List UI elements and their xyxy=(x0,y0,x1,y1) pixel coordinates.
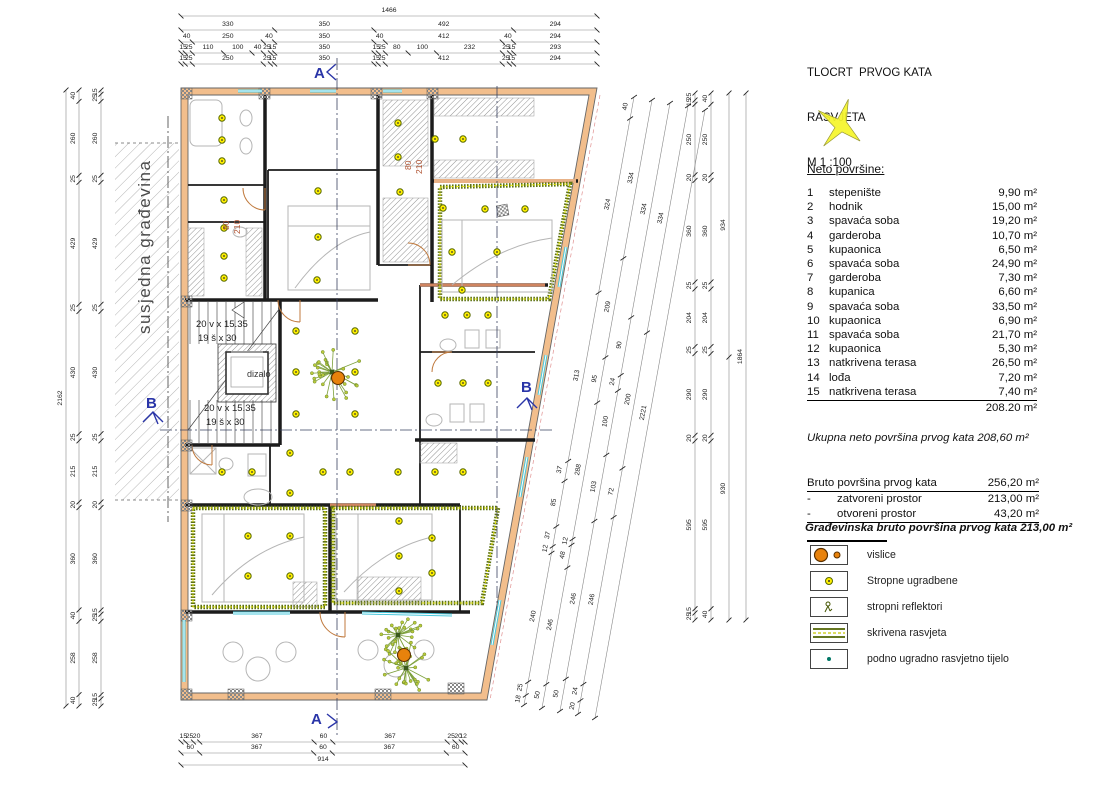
dim-label: 200 xyxy=(624,393,633,406)
dim-label: 20 xyxy=(92,501,99,509)
ceiling-recessed-icon xyxy=(810,571,848,591)
dim-label: 2162 xyxy=(57,390,64,405)
dim-label: 430 xyxy=(70,367,77,379)
dim-label: 25 xyxy=(70,175,77,183)
dim-label: 350 xyxy=(319,44,331,51)
area-row-name: garderoba xyxy=(829,271,965,285)
dim-label: 260 xyxy=(70,132,77,144)
area-row-name: spavaća soba xyxy=(829,328,965,342)
area-row-name: natkrivena terasa xyxy=(829,356,965,370)
dim-label: 25 xyxy=(686,612,693,620)
dim-label: 258 xyxy=(92,652,99,664)
area-row: 3spavaća soba19,20 m² xyxy=(807,214,1037,228)
dim-label: 360 xyxy=(702,225,709,237)
dim-label: 294 xyxy=(550,33,562,40)
dim-label: 40 xyxy=(622,102,630,111)
area-row-number: 5 xyxy=(807,243,829,257)
dim-label: 250 xyxy=(222,55,234,62)
net-areas-table: 1stepenište9,90 m²2hodnik15,00 m²3spavać… xyxy=(807,186,1037,399)
plan-label-marker: B xyxy=(146,395,157,412)
dim-label: 110 xyxy=(203,44,214,51)
dim-label: 20 xyxy=(686,434,693,442)
dim-label: 367 xyxy=(251,733,263,740)
legend-item-label: podno ugradno rasvjetno tijelo xyxy=(867,653,1009,665)
dim-label: 367 xyxy=(251,744,263,751)
area-row: 14lođa7,20 m² xyxy=(807,371,1037,385)
area-row: 4garderoba10,70 m² xyxy=(807,229,1037,243)
area-row-number: 8 xyxy=(807,285,829,299)
net-areas-heading: Neto površine: xyxy=(807,162,884,176)
dim-label: 12 xyxy=(562,536,570,545)
dim-label: 25 xyxy=(70,304,77,312)
area-row-value: 7,40 m² xyxy=(965,385,1037,399)
dim-label: 330 xyxy=(222,21,234,28)
dim-label: 595 xyxy=(686,519,693,531)
area-row-name: kupaonica xyxy=(829,342,965,356)
dim-label: 85 xyxy=(550,498,558,507)
plan-label-small: dizalo xyxy=(247,369,271,379)
dim-label: 25 xyxy=(702,346,709,354)
dim-label: 250 xyxy=(686,134,693,146)
dash: - xyxy=(807,507,837,522)
pendant-light xyxy=(332,372,345,385)
area-row-number: 13 xyxy=(807,356,829,370)
area-row-name: lođa xyxy=(829,371,965,385)
drawing-title: TLOCRT PRVOG KATA xyxy=(807,66,932,81)
area-row-value: 6,50 m² xyxy=(965,243,1037,257)
dim-label: 25 xyxy=(378,44,386,51)
area-row-value: 21,70 m² xyxy=(965,328,1037,342)
dim-label: 215 xyxy=(70,465,77,477)
dim-label: 1864 xyxy=(737,349,744,364)
gross-area-row-label: otvoreni prostor xyxy=(837,507,967,522)
dim-label: 914 xyxy=(317,756,329,763)
dim-label: 50 xyxy=(534,690,542,699)
dim-label: 25 xyxy=(92,614,99,622)
dim-label: 412 xyxy=(438,33,450,40)
dim-label: 25 xyxy=(702,281,709,289)
dim-label: 72 xyxy=(608,487,616,496)
dim-label: 40 xyxy=(70,696,77,704)
area-row-value: 6,90 m² xyxy=(965,314,1037,328)
dim-label: 25 xyxy=(92,433,99,441)
area-row-number: 11 xyxy=(807,328,829,342)
area-row-number: 7 xyxy=(807,271,829,285)
dim-label: 2221 xyxy=(639,405,649,421)
plan-label-door: 210 xyxy=(414,160,424,174)
dim-label: 18 xyxy=(514,694,522,703)
dim-label: 95 xyxy=(591,374,599,383)
legend-item-label: skrivena rasvjeta xyxy=(867,627,946,639)
dim-label: 334 xyxy=(640,203,649,216)
dim-label: 100 xyxy=(232,44,244,51)
pendant-icon xyxy=(810,545,848,565)
area-row: 5kupaonica6,50 m² xyxy=(807,243,1037,257)
area-row-value: 19,20 m² xyxy=(965,214,1037,228)
area-row: 2hodnik15,00 m² xyxy=(807,200,1037,214)
area-row-number: 2 xyxy=(807,200,829,214)
dim-label: 204 xyxy=(702,312,709,324)
area-row: 7garderoba7,30 m² xyxy=(807,271,1037,285)
dim-label: 25 xyxy=(378,55,386,62)
dim-label: 930 xyxy=(720,483,727,495)
dim-label: 90 xyxy=(615,341,623,350)
dim-label: 429 xyxy=(92,237,99,249)
dim-label: 50 xyxy=(552,689,560,698)
dim-label: 1466 xyxy=(381,7,396,14)
cove-lighting-icon xyxy=(810,623,848,643)
area-row-name: spavaća soba xyxy=(829,257,965,271)
area-row-name: kupaonica xyxy=(829,314,965,328)
dim-label: 24 xyxy=(609,377,617,386)
dim-label: 60 xyxy=(452,744,460,751)
dim-label: 40 xyxy=(702,610,709,618)
dim-label: 40 xyxy=(70,612,77,620)
plan-label-marker: A xyxy=(311,711,322,728)
dim-label: 250 xyxy=(702,134,709,146)
area-row-name: spavaća soba xyxy=(829,214,965,228)
dim-label: 20 xyxy=(702,434,709,442)
gross-area-row: -otvoreni prostor43,20 m² xyxy=(807,507,1039,523)
dim-label: 25 xyxy=(92,175,99,183)
area-row-name: kupaonica xyxy=(829,243,965,257)
area-row-value: 15,00 m² xyxy=(965,200,1037,214)
dim-label: 258 xyxy=(70,652,77,664)
dim-label: 25 xyxy=(92,304,99,312)
area-row-name: garderoba xyxy=(829,229,965,243)
dim-label: 246 xyxy=(588,593,597,606)
dim-label: 367 xyxy=(384,744,396,751)
dim-label: 25 xyxy=(185,44,193,51)
dim-label: 103 xyxy=(590,480,599,493)
plan-label-stair: 19 š x 30 xyxy=(198,333,237,344)
area-row-value: 5,30 m² xyxy=(965,342,1037,356)
north-star-icon xyxy=(809,94,871,156)
dim-label: 350 xyxy=(319,33,331,40)
dim-label: 25 xyxy=(516,683,524,692)
dim-label: 324 xyxy=(604,198,613,211)
plan-label-marker: A xyxy=(314,65,325,82)
gross-area-row-value: 43,20 m² xyxy=(967,507,1039,522)
area-row-number: 6 xyxy=(807,257,829,271)
area-row: 11spavaća soba21,70 m² xyxy=(807,328,1037,342)
dim-label: 60 xyxy=(319,744,327,751)
dim-label: 12 xyxy=(542,544,550,553)
dim-label: 934 xyxy=(720,219,727,231)
dim-label: 20 xyxy=(702,174,709,182)
pendant-light xyxy=(398,649,411,662)
plan-label-neighbor: susjedna građevina xyxy=(135,160,154,334)
legend-item-label: stropni reflektori xyxy=(867,601,942,613)
floor-plan-sheet: 1466330350492294402504035040412402941525… xyxy=(0,0,1102,790)
gross-area-header: Bruto površina prvog kata 256,20 m² xyxy=(807,476,1039,492)
dim-label: 250 xyxy=(222,33,234,40)
dim-label: 15 xyxy=(508,55,516,62)
dim-label: 25 xyxy=(70,433,77,441)
area-row-number: 4 xyxy=(807,229,829,243)
dim-label: 40 xyxy=(265,33,273,40)
legend-item: podno ugradno rasvjetno tijelo xyxy=(810,646,1090,672)
area-row-name: natkrivena terasa xyxy=(829,385,965,399)
area-row-value: 33,50 m² xyxy=(965,300,1037,314)
plan-label-stair: 20 v x 15.35 xyxy=(196,319,248,330)
dim-label: 25 xyxy=(185,55,193,62)
area-row-number: 10 xyxy=(807,314,829,328)
dim-label: 288 xyxy=(574,463,583,476)
dim-label: 215 xyxy=(92,465,99,477)
dim-label: 40 xyxy=(376,33,384,40)
area-row-number: 9 xyxy=(807,300,829,314)
gross-area-row-value: 213,00 m² xyxy=(967,492,1039,507)
dim-label: 25 xyxy=(686,346,693,354)
plan-label-marker: B xyxy=(521,379,532,396)
area-row: 9spavaća soba33,50 m² xyxy=(807,300,1037,314)
dim-label: 313 xyxy=(573,369,582,382)
dim-label: 209 xyxy=(604,300,613,313)
area-row-number: 15 xyxy=(807,385,829,399)
dim-label: 204 xyxy=(686,312,693,324)
lighting-legend: visliceStropne ugradbenestropni reflekto… xyxy=(810,542,1090,672)
area-row-name: kupanica xyxy=(829,285,965,299)
area-row-number: 3 xyxy=(807,214,829,228)
gross-area-header-value: 256,20 m² xyxy=(967,476,1039,491)
dim-label: 60 xyxy=(187,744,195,751)
gross-area-row: -zatvoreni prostor213,00 m² xyxy=(807,492,1039,507)
dim-label: 430 xyxy=(92,367,99,379)
dim-label: 360 xyxy=(92,553,99,565)
legend-item: vislice xyxy=(810,542,1090,568)
area-row: 10kupaonica6,90 m² xyxy=(807,314,1037,328)
dim-label: 25 xyxy=(92,698,99,706)
dim-label: 40 xyxy=(504,33,512,40)
dim-label: 40 xyxy=(183,33,191,40)
area-row-value: 9,90 m² xyxy=(965,186,1037,200)
plan-label-door: 80 xyxy=(403,160,413,170)
plan-label-door: 210 xyxy=(232,220,242,234)
dim-label: 290 xyxy=(702,389,709,401)
dim-label: 25 xyxy=(92,94,99,102)
dim-label: 20 xyxy=(193,733,201,740)
dim-label: 260 xyxy=(92,132,99,144)
area-row-name: stepenište xyxy=(829,186,965,200)
dim-label: 246 xyxy=(569,592,578,605)
area-row-name: spavaća soba xyxy=(829,300,965,314)
total-net-area-note: Ukupna neto površina prvog kata 208,60 m… xyxy=(807,432,1087,444)
area-row-value: 7,30 m² xyxy=(965,271,1037,285)
construction-gross-area-note: Građevinska bruto površina prvog kata 21… xyxy=(805,522,1095,534)
area-row: 1stepenište9,90 m² xyxy=(807,186,1037,200)
dim-label: 15 xyxy=(269,44,277,51)
legend-item: skrivena rasvjeta xyxy=(810,620,1090,646)
area-row: 6spavaća soba24,90 m² xyxy=(807,257,1037,271)
plan-label-stair: 20 v x 15.35 xyxy=(204,403,256,414)
area-row: 13natkrivena terasa26,50 m² xyxy=(807,356,1037,370)
plan-label-door: 80 xyxy=(221,220,231,230)
area-row: 15natkrivena terasa7,40 m² xyxy=(807,385,1037,399)
dim-label: 80 xyxy=(393,44,401,51)
dim-label: 367 xyxy=(384,733,396,740)
dim-label: 360 xyxy=(686,225,693,237)
dim-label: 290 xyxy=(686,389,693,401)
dim-label: 294 xyxy=(550,55,562,62)
legend-item: Stropne ugradbene xyxy=(810,568,1090,594)
area-row: 8kupanica6,60 m² xyxy=(807,285,1037,299)
dim-label: 232 xyxy=(464,44,476,51)
area-row-value: 7,20 m² xyxy=(965,371,1037,385)
legend-item-label: vislice xyxy=(867,549,896,561)
dim-label: 360 xyxy=(70,553,77,565)
gross-area-table: Bruto površina prvog kata 256,20 m² -zat… xyxy=(807,476,1039,523)
dim-label: 492 xyxy=(438,21,450,28)
area-row-value: 10,70 m² xyxy=(965,229,1037,243)
dim-label: 15 xyxy=(269,55,277,62)
net-areas-total: 208.20 m² xyxy=(807,400,1037,416)
area-row-value: 6,60 m² xyxy=(965,285,1037,299)
area-row-number: 14 xyxy=(807,371,829,385)
plan-label-stair: 19 š x 30 xyxy=(206,417,245,428)
dim-label: 37 xyxy=(556,465,564,474)
dim-label: 12 xyxy=(459,733,467,740)
dim-label: 294 xyxy=(550,21,562,28)
legend-item: stropni reflektori xyxy=(810,594,1090,620)
dim-label: 595 xyxy=(702,519,709,531)
dim-label: 100 xyxy=(601,415,610,428)
dim-label: 40 xyxy=(254,44,262,51)
gross-area-row-label: zatvoreni prostor xyxy=(837,492,967,507)
area-row-value: 26,50 m² xyxy=(965,356,1037,370)
dim-label: 20 xyxy=(569,701,577,710)
area-row: 12kupaonica5,30 m² xyxy=(807,342,1037,356)
dim-label: 240 xyxy=(529,610,538,623)
dim-label: 48 xyxy=(559,551,567,560)
legend-item-label: Stropne ugradbene xyxy=(867,575,958,587)
spotlight-icon xyxy=(810,597,848,617)
dim-label: 100 xyxy=(417,44,429,51)
dim-label: 40 xyxy=(702,95,709,103)
floor-light-icon xyxy=(810,649,848,669)
area-row-number: 12 xyxy=(807,342,829,356)
dash: - xyxy=(807,492,837,507)
dim-label: 24 xyxy=(571,687,579,696)
dim-label: 334 xyxy=(627,172,636,185)
gross-area-header-label: Bruto površina prvog kata xyxy=(807,476,967,491)
dim-label: 37 xyxy=(544,531,552,540)
dim-label: 350 xyxy=(319,21,331,28)
dim-label: 60 xyxy=(320,733,328,740)
area-row-name: hodnik xyxy=(829,200,965,214)
dim-label: 334 xyxy=(657,212,666,225)
dim-label: 15 xyxy=(508,44,516,51)
dim-label: 412 xyxy=(438,55,450,62)
dim-label: 20 xyxy=(686,174,693,182)
dim-label: 20 xyxy=(70,501,77,509)
dim-label: 25 xyxy=(686,281,693,289)
dim-label: 40 xyxy=(70,92,77,100)
dim-label: 429 xyxy=(70,237,77,249)
dim-label: 350 xyxy=(319,55,331,62)
dim-label: 246 xyxy=(546,618,555,631)
dim-label: 293 xyxy=(550,44,562,51)
area-row-number: 1 xyxy=(807,186,829,200)
area-row-value: 24,90 m² xyxy=(965,257,1037,271)
